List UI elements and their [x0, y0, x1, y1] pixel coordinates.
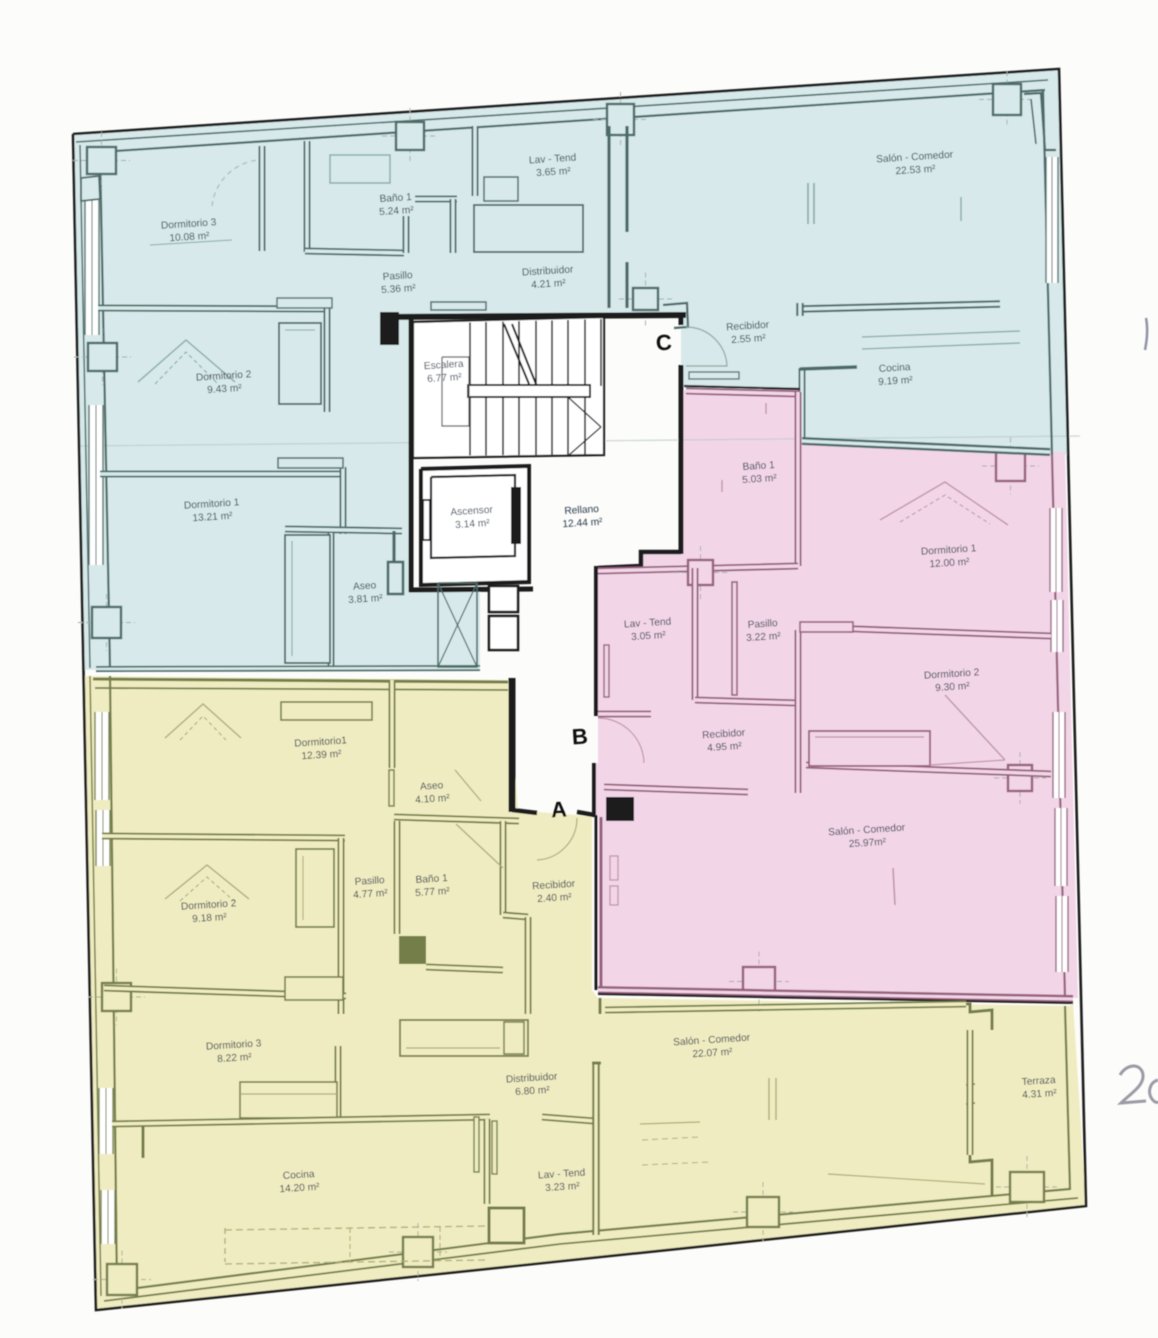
svg-text:9.19 m²: 9.19 m² [878, 375, 914, 388]
svg-text:Cocina: Cocina [878, 362, 911, 375]
svg-text:Pasillo: Pasillo [382, 270, 413, 283]
svg-text:5.03 m²: 5.03 m² [742, 473, 778, 486]
svg-text:4.77 m²: 4.77 m² [353, 888, 389, 901]
svg-text:Aseo: Aseo [420, 780, 444, 792]
svg-text:Aseo: Aseo [353, 580, 377, 592]
svg-text:Pasillo: Pasillo [354, 875, 385, 888]
svg-text:6.80 m²: 6.80 m² [515, 1085, 551, 1098]
svg-text:Baño 1: Baño 1 [379, 192, 412, 205]
svg-text:3.65 m²: 3.65 m² [536, 166, 572, 179]
svg-text:4.21 m²: 4.21 m² [531, 278, 567, 291]
svg-text:Rellano: Rellano [564, 504, 600, 517]
svg-text:3.81 m²: 3.81 m² [348, 593, 384, 606]
svg-text:9.18 m²: 9.18 m² [192, 912, 228, 925]
svg-text:C: C [655, 330, 673, 356]
svg-text:Pasillo: Pasillo [747, 618, 778, 631]
svg-text:3.14 m²: 3.14 m² [455, 518, 491, 531]
svg-text:4.10 m²: 4.10 m² [415, 793, 451, 806]
svg-text:3.23 m²: 3.23 m² [545, 1181, 581, 1194]
svg-text:2.55 m²: 2.55 m² [731, 333, 767, 346]
svg-text:8.22 m²: 8.22 m² [217, 1052, 253, 1065]
svg-text:Terraza: Terraza [1021, 1075, 1056, 1088]
svg-text:4.95 m²: 4.95 m² [707, 741, 743, 754]
svg-text:A: A [550, 797, 568, 823]
svg-text:2.40 m²: 2.40 m² [537, 892, 573, 905]
svg-text:5.77 m²: 5.77 m² [415, 886, 451, 899]
svg-text:9.43 m²: 9.43 m² [207, 383, 243, 396]
svg-text:B: B [571, 724, 588, 750]
svg-text:4.31 m²: 4.31 m² [1022, 1088, 1058, 1101]
svg-text:Baño 1: Baño 1 [415, 873, 448, 886]
svg-text:3.05 m²: 3.05 m² [631, 630, 667, 643]
svg-text:9.30 m²: 9.30 m² [935, 681, 971, 694]
svg-text:5.36 m²: 5.36 m² [381, 283, 417, 296]
svg-text:6.77 m²: 6.77 m² [427, 372, 463, 385]
svg-text:3.22 m²: 3.22 m² [746, 631, 782, 644]
svg-text:Baño 1: Baño 1 [742, 460, 775, 473]
svg-text:Cocina: Cocina [282, 1169, 315, 1182]
svg-text:5.24 m²: 5.24 m² [379, 205, 415, 218]
